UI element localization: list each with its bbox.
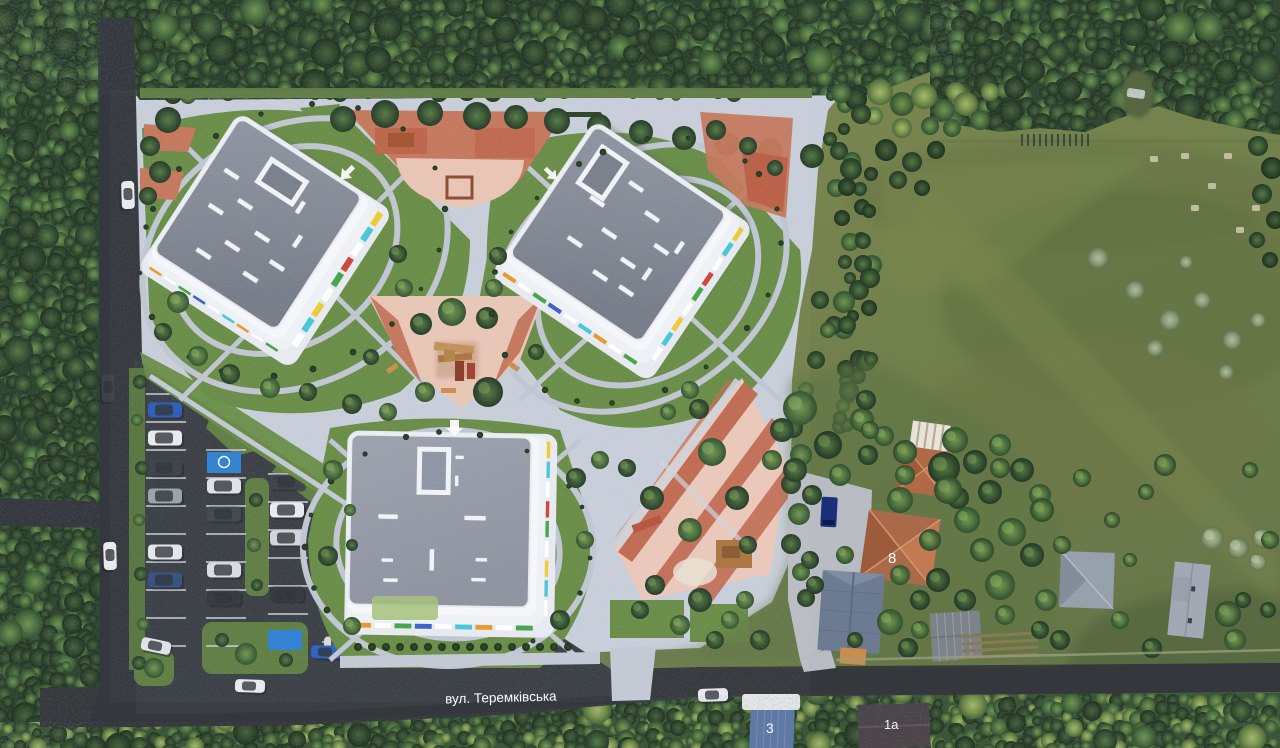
svg-text:вул. Теремківська: вул. Теремківська: [445, 689, 557, 707]
